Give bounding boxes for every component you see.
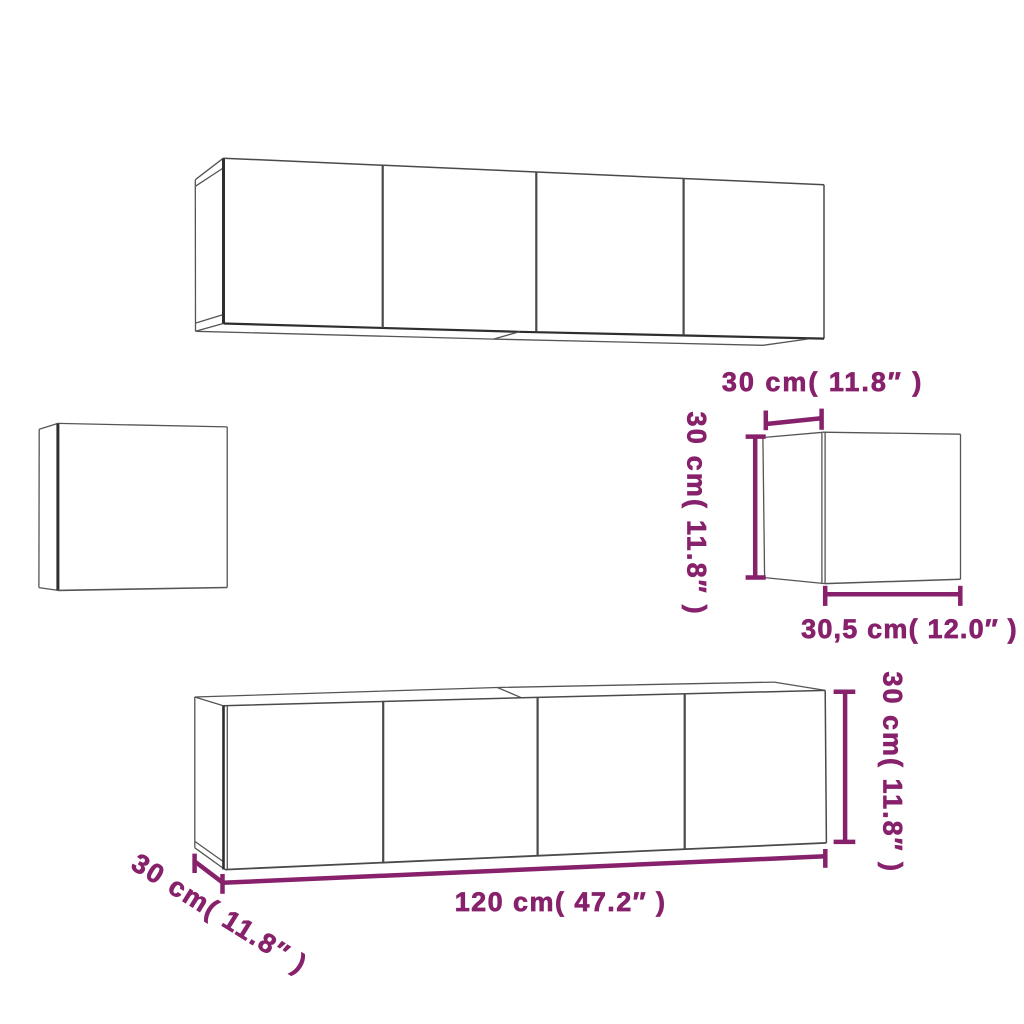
svg-text:30,5 cm( 12.0″ ): 30,5 cm( 12.0″ )	[801, 614, 1018, 644]
svg-text:30 cm( 11.8″ ): 30 cm( 11.8″ )	[682, 412, 712, 616]
svg-text:30 cm( 11.8″ ): 30 cm( 11.8″ )	[722, 367, 924, 397]
svg-text:120 cm( 47.2″ ): 120 cm( 47.2″ )	[455, 887, 667, 917]
svg-text:30 cm( 11.8″ ): 30 cm( 11.8″ )	[878, 672, 908, 874]
